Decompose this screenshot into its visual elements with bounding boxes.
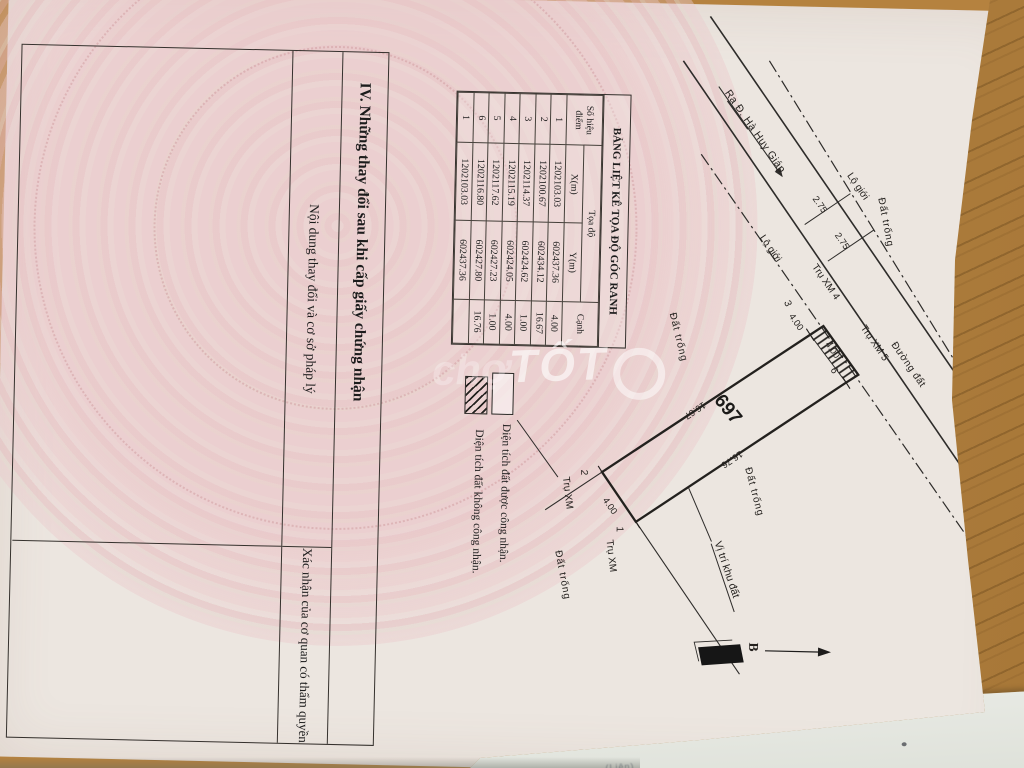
paper-dot xyxy=(902,742,907,746)
coord-cell: 602434.12 xyxy=(531,222,548,301)
legend-unrecognized-swatch xyxy=(464,376,488,415)
col-coords-header: Tọa độ xyxy=(580,145,602,302)
coordinates-table: BẢNG LIỆT KÊ TỌA ĐỘ GÓC RANH Số hiệu điể… xyxy=(451,91,631,349)
coord-cell: 16.76 xyxy=(468,299,484,344)
dim-edge61: 16.76 xyxy=(720,449,745,470)
coord-cell: 1 xyxy=(457,92,474,143)
coord-cell: 1202114.37 xyxy=(518,144,535,223)
photo-canvas: III. Sơ đồ thửa đất, nhà ở và tài sản kh… xyxy=(0,0,1024,768)
dim-edge12: 4.00 xyxy=(601,496,620,517)
section4-confirm-cell xyxy=(8,541,281,743)
coord-cell: 602424.62 xyxy=(516,222,533,301)
section4-col-confirm-header: Xác nhận của cơ quan có thẩm quyền xyxy=(278,547,331,744)
coord-cell: 1202117.62 xyxy=(487,143,504,222)
legend-leader xyxy=(516,420,559,477)
post-label: Trụ XM xyxy=(604,539,619,572)
coord-cell: 602427.23 xyxy=(485,221,502,300)
point-label: 6 xyxy=(828,366,840,376)
vacant-label: Đất trống xyxy=(667,311,691,363)
coord-cell: 6 xyxy=(473,93,490,144)
coord-cell: 5 xyxy=(488,93,505,144)
vacant-label: Đất trống xyxy=(552,549,573,600)
coord-cell: 2 xyxy=(535,94,552,145)
dim-corridor: 2.75 xyxy=(833,231,852,252)
section4-content-cell xyxy=(12,45,292,547)
point-label: 2 xyxy=(578,470,589,476)
coord-cell: 1 xyxy=(550,94,567,145)
certificate-page: III. Sơ đồ thửa đất, nhà ở và tài sản kh… xyxy=(0,0,1024,768)
dim-strip: 4.00 xyxy=(787,312,806,333)
coord-cell: 4.00 xyxy=(499,300,515,345)
dim-corridor: 2.75 xyxy=(811,194,830,215)
north-arrow-icon xyxy=(765,651,822,652)
col-y-header: Y(m) xyxy=(562,223,582,302)
coord-cell: 1.00 xyxy=(515,300,531,345)
coord-cell: 4.00 xyxy=(546,301,562,346)
coordinates-table-title: BẢNG LIỆT KÊ TỌA ĐỘ GÓC RANH xyxy=(598,95,631,348)
coord-cell: 1202116.80 xyxy=(471,143,488,222)
dirt-road-label: Đường đất xyxy=(889,339,929,389)
dim-edge23: 16.67 xyxy=(683,400,708,421)
scale-bar-icon xyxy=(698,643,744,666)
vacant-label: Đất trống xyxy=(742,466,766,518)
corridor-label: Lộ giới xyxy=(844,171,870,202)
parcel-number: 697 xyxy=(710,390,746,428)
legend-recognized-swatch xyxy=(491,373,514,415)
location-label: Vị trí khu đất xyxy=(711,540,746,612)
post-label: Trụ XM xyxy=(560,476,575,509)
coord-cell: 602427.80 xyxy=(469,221,486,300)
coord-cell: 4 xyxy=(504,93,521,144)
coord-cell: 602437.36 xyxy=(547,223,564,302)
col-edge-header: Cạnh xyxy=(561,301,598,346)
col-point-header: Số hiệu điểm xyxy=(566,95,603,146)
coord-cell xyxy=(453,299,469,344)
paper-edge-shadow xyxy=(0,757,640,768)
coord-cell: 16.67 xyxy=(530,301,546,346)
corridor-label: Lộ giới xyxy=(757,233,783,264)
coord-cell: 1.00 xyxy=(484,300,500,345)
north-label: B xyxy=(746,642,761,651)
location-leader xyxy=(687,488,712,542)
vacant-label: Đất trống xyxy=(875,197,896,248)
coord-cell: 1202103.03 xyxy=(549,144,566,223)
coord-cell: 3 xyxy=(519,94,536,145)
vertex-tick xyxy=(598,466,606,478)
point-label: 3 xyxy=(781,299,793,309)
coord-cell: 1202115.19 xyxy=(502,143,519,222)
north-arrowhead-icon xyxy=(818,648,831,657)
point-label: 1 xyxy=(614,526,625,532)
section4-table: IV. Những thay đổi sau khi cấp giấy chứn… xyxy=(6,44,390,746)
coord-cell: 602424.05 xyxy=(500,222,517,301)
col-x-header: X(m) xyxy=(564,145,584,224)
post-label: Trụ XM5 xyxy=(858,323,891,363)
vertex-tick xyxy=(632,516,640,528)
coord-cell: 1202103.03 xyxy=(456,142,473,221)
coord-cell: 1202100.67 xyxy=(533,144,550,223)
coord-cell: 602437.36 xyxy=(454,221,471,300)
